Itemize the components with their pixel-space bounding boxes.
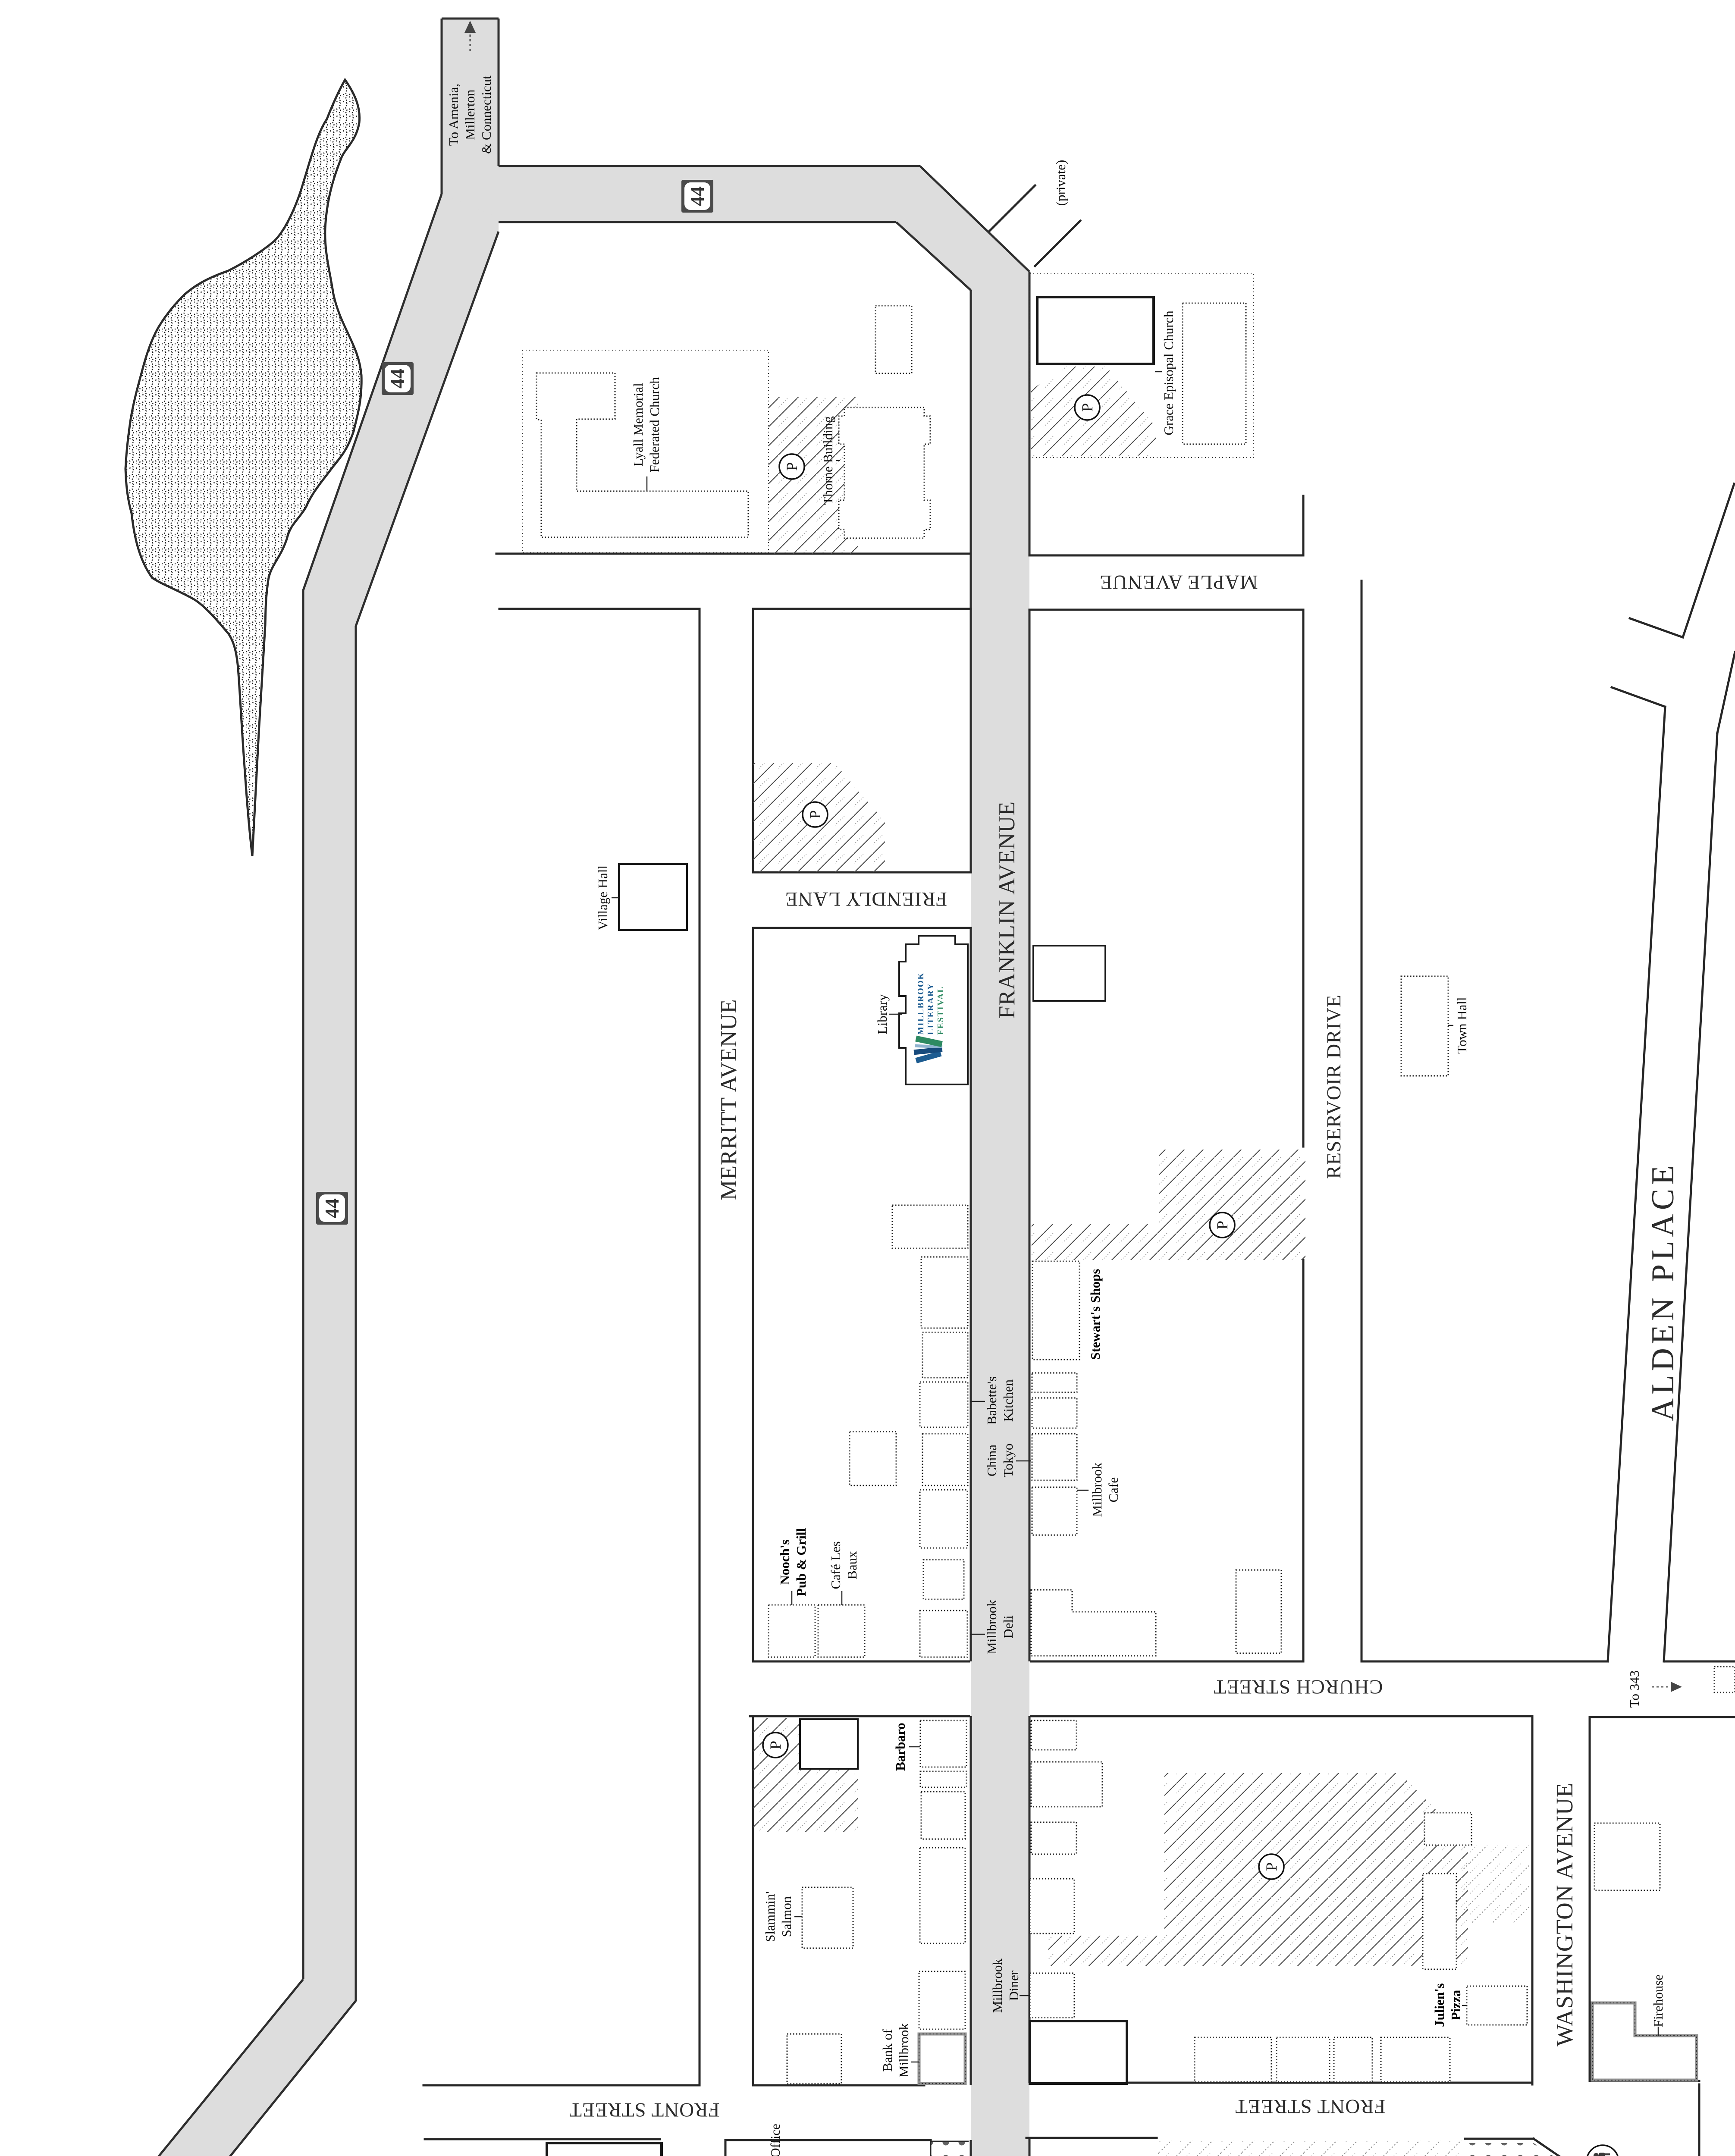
svg-text:CHURCH STREET: CHURCH STREET <box>1214 1676 1383 1698</box>
svg-text:Salmon: Salmon <box>779 1896 794 1937</box>
svg-text:WASHINGTON AVENUE: WASHINGTON AVENUE <box>1551 1783 1578 2046</box>
svg-text:Millbrook: Millbrook <box>990 1959 1005 2013</box>
svg-text:FESTIVAL: FESTIVAL <box>936 986 945 1035</box>
svg-text:FRONT STREET: FRONT STREET <box>569 2099 719 2121</box>
svg-text:FRANKLIN AVENUE: FRANKLIN AVENUE <box>995 801 1020 1018</box>
svg-text:China: China <box>984 1445 999 1476</box>
svg-text:P: P <box>767 1741 784 1749</box>
svg-text:Diner: Diner <box>1006 1970 1021 2001</box>
svg-text:Stewart's Shops: Stewart's Shops <box>1088 1269 1103 1360</box>
svg-text:P: P <box>783 462 800 471</box>
svg-text:FRONT STREET: FRONT STREET <box>1235 2095 1385 2118</box>
svg-text:Babette's: Babette's <box>984 1376 999 1425</box>
svg-text:Bank of: Bank of <box>880 2029 895 2072</box>
svg-text:44: 44 <box>686 186 708 206</box>
svg-text:ALDEN PLACE: ALDEN PLACE <box>1645 1162 1681 1422</box>
svg-text:(private): (private) <box>1053 160 1068 206</box>
svg-text:Cafe: Cafe <box>1106 1477 1121 1503</box>
svg-text:Tokyo: Tokyo <box>1001 1444 1016 1478</box>
svg-text:RESERVOIR DRIVE: RESERVOIR DRIVE <box>1323 994 1345 1179</box>
svg-text:Firehouse: Firehouse <box>1650 1974 1666 2027</box>
svg-text:Town Hall: Town Hall <box>1454 997 1469 1053</box>
svg-text:Barbaro: Barbaro <box>893 1723 908 1771</box>
svg-text:Deli: Deli <box>1001 1615 1016 1639</box>
svg-text:44: 44 <box>386 369 408 389</box>
svg-text:Nooch's: Nooch's <box>777 1539 792 1585</box>
svg-text:Pub & Grill: Pub & Grill <box>794 1528 809 1596</box>
svg-text:To Amenia,: To Amenia, <box>446 84 461 146</box>
svg-text:Federated Church: Federated Church <box>647 377 662 473</box>
svg-text:Millerton: Millerton <box>462 89 477 140</box>
svg-text:MILLBROOK: MILLBROOK <box>916 972 926 1035</box>
svg-text:P: P <box>1214 1221 1231 1229</box>
svg-text:Library: Library <box>875 994 890 1034</box>
svg-text:Thorne Building: Thorne Building <box>820 416 835 505</box>
svg-text:P: P <box>806 810 824 819</box>
svg-text:44: 44 <box>321 1198 343 1218</box>
svg-text:MERRITT AVENUE: MERRITT AVENUE <box>716 999 741 1200</box>
svg-text:Kitchen: Kitchen <box>1001 1379 1016 1422</box>
svg-text:P: P <box>1263 1862 1280 1871</box>
svg-text:To 343: To 343 <box>1627 1670 1642 1708</box>
svg-text:Millbrook: Millbrook <box>1089 1463 1104 1517</box>
svg-text:Grace Episopal Church: Grace Episopal Church <box>1161 310 1176 436</box>
svg-text:Pizza: Pizza <box>1448 1990 1463 2020</box>
svg-text:FRIENDLY LANE: FRIENDLY LANE <box>785 888 947 910</box>
svg-text:Village Hall: Village Hall <box>595 865 610 931</box>
svg-text:MAPLE AVENUE: MAPLE AVENUE <box>1099 571 1258 593</box>
svg-text:& Connecticut: & Connecticut <box>479 75 494 154</box>
svg-text:Lyall Memorial: Lyall Memorial <box>631 383 646 467</box>
svg-text:Slammin': Slammin' <box>762 1891 778 1942</box>
svg-text:Millbrook: Millbrook <box>984 1600 999 1654</box>
svg-text:LITERARY: LITERARY <box>926 983 935 1035</box>
svg-text:Julien's: Julien's <box>1432 1983 1447 2027</box>
svg-text:P: P <box>1079 403 1096 412</box>
svg-text:Café Les: Café Les <box>828 1541 843 1589</box>
svg-text:Baux: Baux <box>844 1551 860 1579</box>
svg-text:Millbrook: Millbrook <box>896 2023 911 2078</box>
svg-text:Post Office: Post Office <box>768 2124 783 2156</box>
